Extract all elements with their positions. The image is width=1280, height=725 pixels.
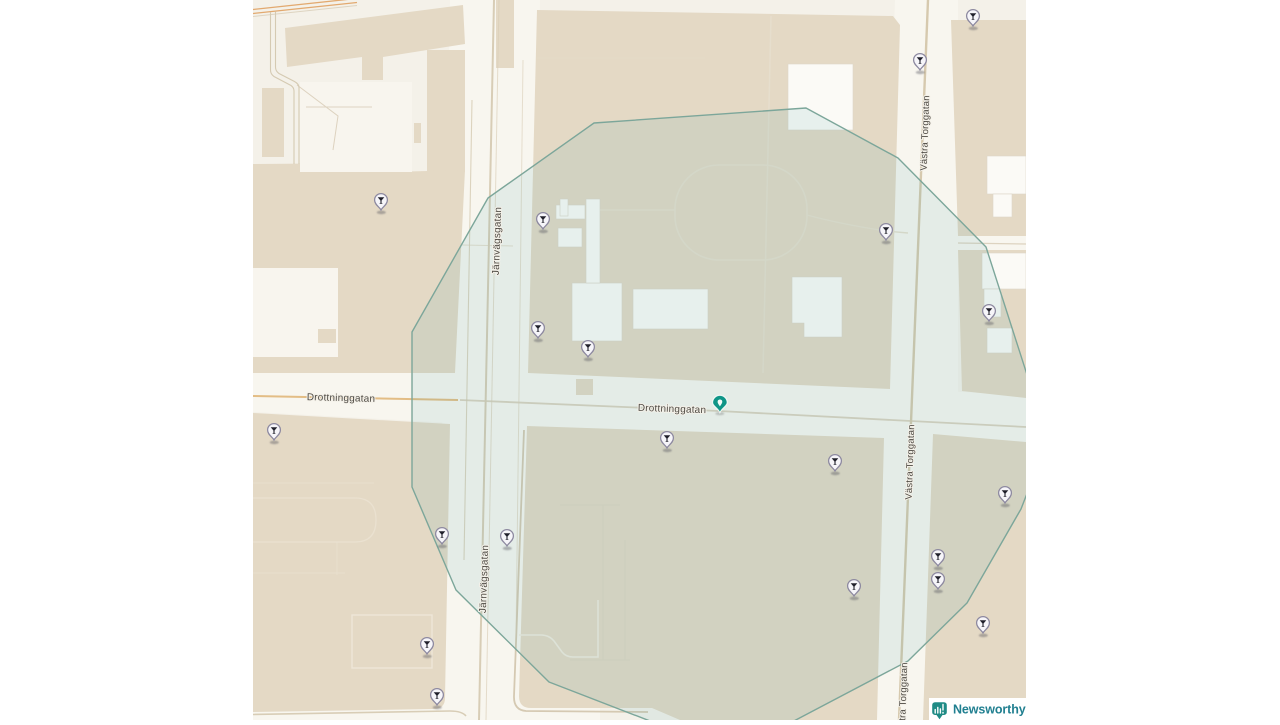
svg-text:Drottninggatan: Drottninggatan [307,392,376,405]
svg-text:Newsworthy: Newsworthy [953,703,1026,717]
svg-text:Västra Torggatan: Västra Torggatan [897,662,911,720]
